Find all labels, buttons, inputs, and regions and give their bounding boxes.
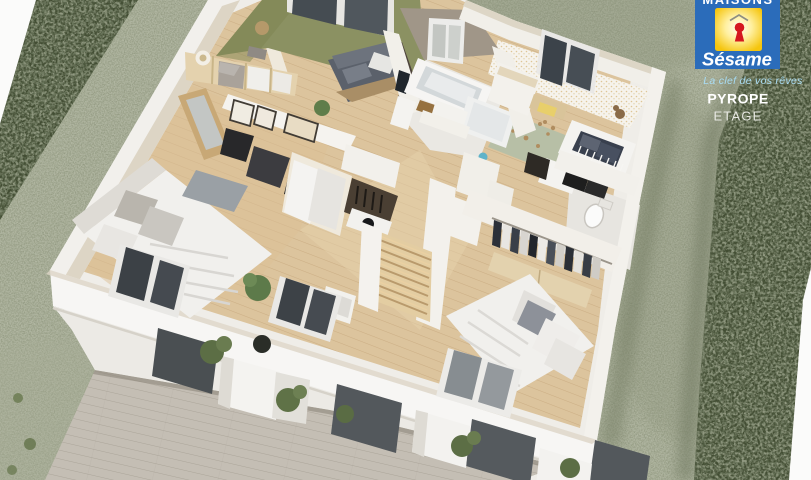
svg-text:La clef de vos rêves: La clef de vos rêves	[703, 75, 803, 87]
svg-text:PYROPE: PYROPE	[707, 91, 768, 107]
svg-text:ETAGE: ETAGE	[713, 109, 762, 124]
svg-text:Sésame: Sésame	[702, 49, 772, 70]
svg-text:MAISONS: MAISONS	[702, 0, 773, 7]
